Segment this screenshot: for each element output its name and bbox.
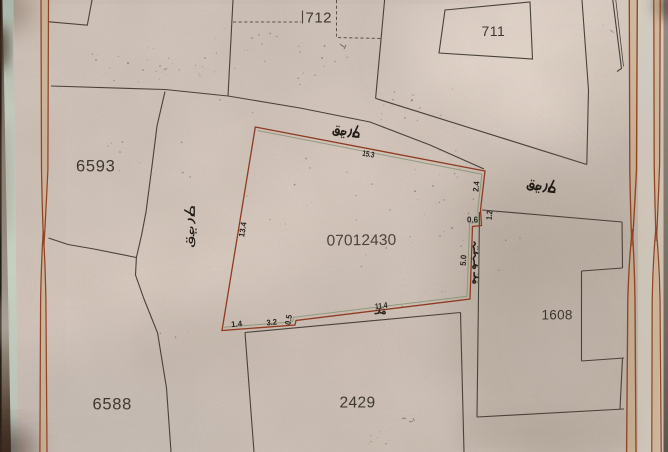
svg-text:712: 712 xyxy=(306,10,333,27)
svg-text:1608: 1608 xyxy=(542,308,573,323)
svg-text:11.4: 11.4 xyxy=(375,301,389,312)
svg-text:07012430: 07012430 xyxy=(326,232,396,250)
svg-text:0.6: 0.6 xyxy=(467,215,478,224)
svg-text:1.4: 1.4 xyxy=(231,319,243,329)
svg-text:711: 711 xyxy=(482,23,506,39)
svg-text:2.4: 2.4 xyxy=(471,180,481,192)
svg-text:5.0: 5.0 xyxy=(459,254,469,266)
svg-text:6588: 6588 xyxy=(93,396,133,414)
svg-text:1.2: 1.2 xyxy=(485,210,495,221)
svg-text:0.5: 0.5 xyxy=(283,314,294,326)
svg-text:6593: 6593 xyxy=(76,158,116,176)
svg-text:3.2: 3.2 xyxy=(266,318,278,328)
svg-text:2429: 2429 xyxy=(340,395,376,412)
